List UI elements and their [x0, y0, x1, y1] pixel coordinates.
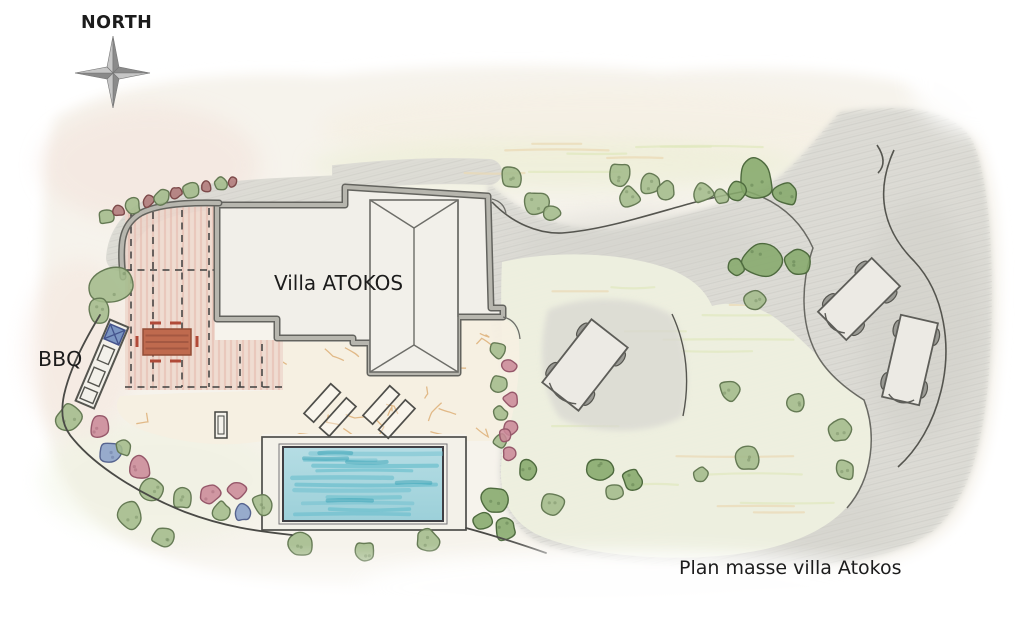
plant-texture-dot — [135, 516, 138, 519]
plant-texture-dot — [156, 486, 159, 489]
plant-bush — [610, 164, 630, 186]
plant-texture-dot — [95, 305, 98, 308]
plant-texture-dot — [617, 176, 620, 179]
plant-texture-dot — [512, 177, 515, 180]
pencil-streak — [709, 473, 802, 474]
plant-bush — [202, 181, 211, 192]
plant-texture-dot — [707, 191, 710, 194]
plant-texture-dot — [750, 184, 753, 187]
plant-texture-dot — [528, 467, 531, 470]
plant-texture-dot — [597, 464, 600, 467]
pool-streak — [294, 490, 409, 491]
plant-texture-dot — [748, 456, 751, 459]
pool-streak-dark — [304, 458, 347, 459]
plant-texture-dot — [498, 526, 501, 529]
pool-streak-dark — [397, 482, 431, 483]
plant-texture-dot — [110, 451, 113, 454]
pool-streak — [292, 477, 392, 478]
plant-texture-dot — [260, 503, 263, 506]
plant-texture-dot — [647, 187, 650, 190]
plant-texture-dot — [530, 198, 533, 201]
plant-texture-dot — [792, 264, 795, 267]
pencil-streak — [611, 287, 654, 288]
plant-texture-dot — [126, 518, 129, 521]
plant-texture-dot — [792, 260, 795, 263]
pool-streak-dark — [319, 452, 351, 453]
plant-texture-dot — [846, 469, 849, 472]
plant-texture-dot — [123, 272, 126, 275]
pool-layer — [262, 437, 466, 530]
plant-texture-dot — [521, 468, 524, 471]
plant-bush — [504, 447, 516, 460]
pencil-streak — [505, 149, 608, 150]
plant-texture-dot — [754, 299, 757, 302]
plant-texture-dot — [133, 465, 136, 468]
plant-texture-dot — [727, 389, 730, 392]
pool-streak — [303, 503, 413, 504]
plant-bush — [183, 183, 199, 199]
plant-texture-dot — [505, 522, 508, 525]
plant-texture-dot — [759, 253, 762, 256]
plant-texture-dot — [262, 506, 265, 509]
pencil-streak — [682, 351, 752, 352]
plant-texture-dot — [548, 501, 551, 504]
pool-streak — [295, 514, 409, 515]
plant-bush — [99, 210, 114, 223]
villa-label: Villa ATOKOS — [274, 271, 403, 295]
plant-texture-dot — [650, 180, 653, 183]
bbq-label: BBQ — [38, 347, 82, 371]
north-label: NORTH — [81, 13, 152, 33]
plant-bush — [89, 298, 109, 323]
plant-texture-dot — [489, 500, 492, 503]
plant-texture-dot — [843, 431, 846, 434]
plant-texture-dot — [747, 458, 750, 461]
plant-texture-dot — [181, 495, 184, 498]
plant-texture-dot — [761, 180, 764, 183]
plant-texture-dot — [95, 427, 98, 430]
pool-streak — [330, 509, 410, 510]
plant-texture-dot — [73, 418, 76, 421]
plant-bush — [491, 376, 507, 392]
plant-texture-dot — [751, 250, 754, 253]
plant-texture-dot — [553, 501, 556, 504]
plant-texture-dot — [204, 497, 207, 500]
plant-texture-dot — [111, 456, 114, 459]
plant-texture-dot — [113, 293, 116, 296]
plant-bush — [228, 177, 236, 187]
plant-texture-dot — [631, 483, 634, 486]
site-plan-page: NORTH Villa ATOKOS BBQ Plan masse villa … — [0, 0, 1024, 640]
plant-texture-dot — [537, 207, 540, 210]
plant-texture-dot — [798, 403, 801, 406]
plant-bush — [500, 429, 511, 442]
plant-texture-dot — [134, 468, 137, 471]
plant-texture-dot — [627, 474, 630, 477]
plant-bush — [113, 205, 125, 215]
plant-bush — [125, 198, 139, 214]
plant-texture-dot — [426, 536, 429, 539]
plant-bush — [735, 446, 759, 469]
plant-texture-dot — [779, 192, 782, 195]
pencil-streak — [607, 157, 662, 158]
plant-texture-dot — [211, 490, 214, 493]
plant-texture-dot — [153, 490, 156, 493]
plant-texture-dot — [101, 308, 104, 311]
plant-texture-dot — [758, 298, 761, 301]
pencil-streak — [741, 503, 834, 504]
plant-texture-dot — [625, 190, 628, 193]
plant-texture-dot — [836, 432, 839, 435]
plant-bush — [606, 485, 623, 499]
plant-bush — [502, 167, 521, 187]
plant-texture-dot — [723, 392, 726, 395]
caption-label: Plan masse villa Atokos — [679, 557, 902, 579]
pool-streak — [317, 470, 412, 471]
pool-streak — [296, 485, 436, 486]
plant-texture-dot — [698, 187, 701, 190]
plant-texture-dot — [497, 502, 500, 505]
plant-texture-dot — [631, 195, 634, 198]
pool-streak-dark — [328, 500, 372, 501]
site-plan-canvas: NORTH Villa ATOKOS BBQ Plan masse villa … — [0, 0, 1024, 640]
plant-bush — [91, 416, 109, 438]
plant-texture-dot — [617, 179, 620, 182]
pool-streak-dark — [347, 462, 387, 463]
plant-texture-dot — [840, 470, 843, 473]
plant-texture-dot — [93, 430, 96, 433]
plant-bush — [787, 394, 804, 412]
plant-texture-dot — [166, 538, 169, 541]
plant-texture-dot — [180, 498, 183, 501]
plant-texture-dot — [790, 195, 793, 198]
